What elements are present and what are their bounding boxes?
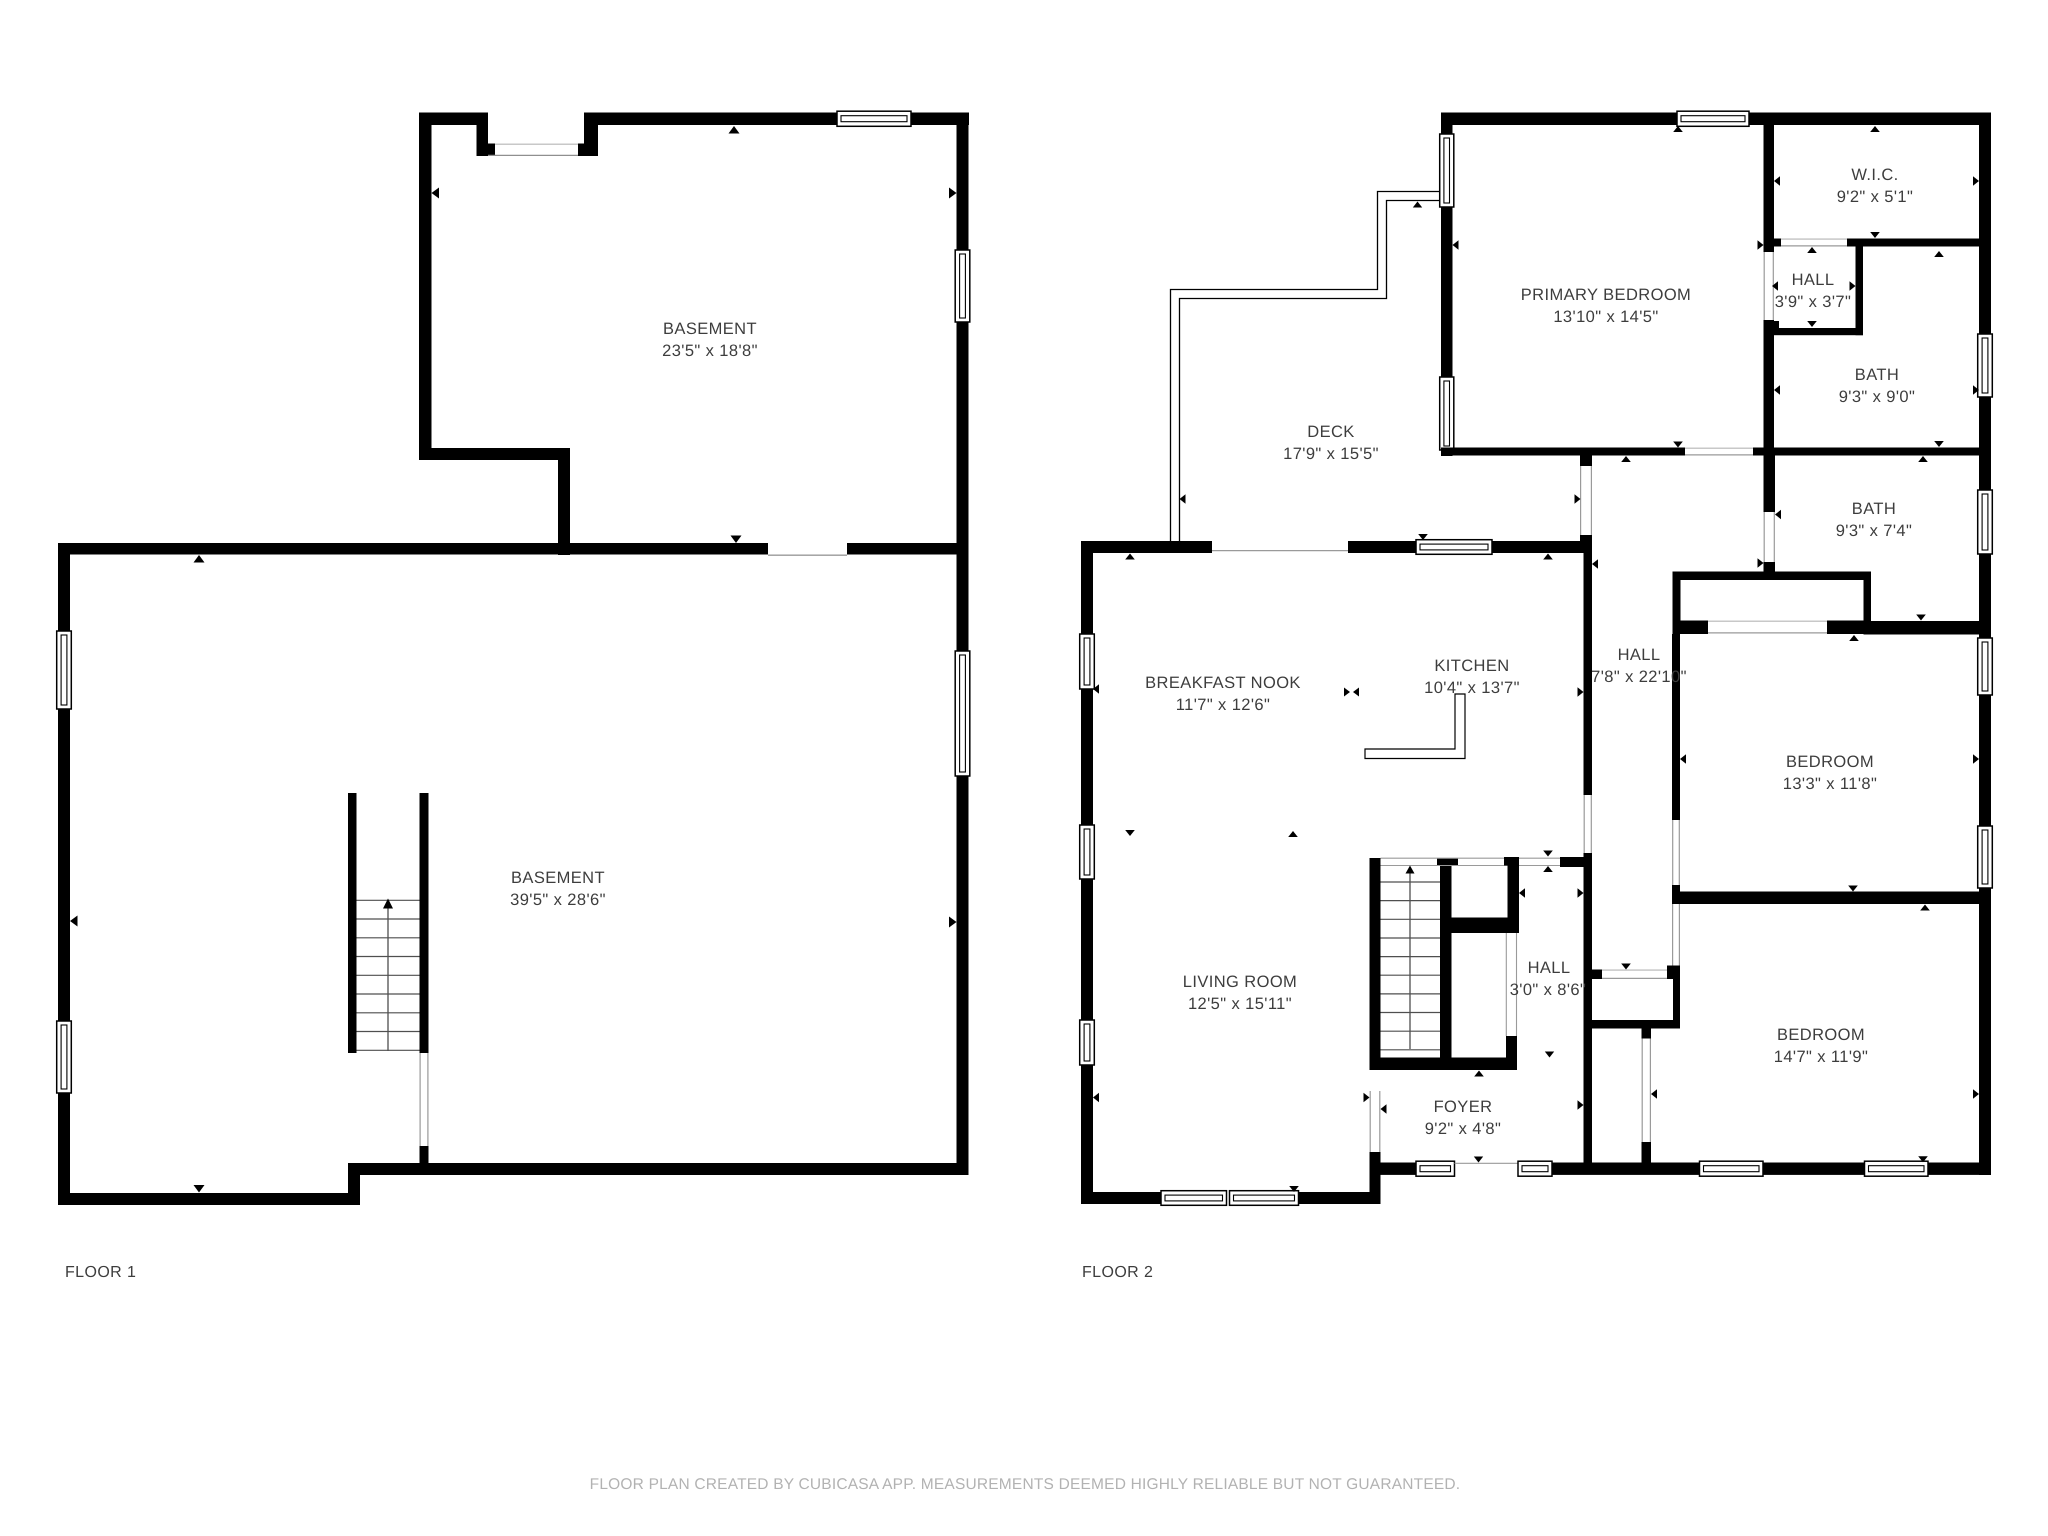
svg-text:13'10" x 14'5": 13'10" x 14'5" [1553,308,1658,326]
svg-text:FLOOR 2: FLOOR 2 [1082,1264,1153,1281]
svg-text:PRIMARY BEDROOM: PRIMARY BEDROOM [1521,286,1691,304]
svg-text:9'2" x 4'8": 9'2" x 4'8" [1425,1120,1502,1138]
svg-text:39'5" x 28'6": 39'5" x 28'6" [510,891,606,909]
svg-text:HALL: HALL [1792,271,1835,289]
svg-text:BEDROOM: BEDROOM [1777,1026,1865,1044]
svg-text:W.I.C.: W.I.C. [1851,166,1898,184]
svg-text:11'7" x 12'6": 11'7" x 12'6" [1176,696,1270,714]
svg-text:FOYER: FOYER [1434,1098,1493,1116]
svg-text:FLOOR PLAN CREATED BY CUBICASA: FLOOR PLAN CREATED BY CUBICASA APP. MEAS… [590,1476,1461,1493]
svg-text:DECK: DECK [1307,423,1354,441]
svg-text:LIVING ROOM: LIVING ROOM [1183,973,1297,991]
svg-text:KITCHEN: KITCHEN [1434,657,1509,675]
svg-text:13'3" x 11'8": 13'3" x 11'8" [1783,775,1877,793]
svg-text:HALL: HALL [1618,646,1661,664]
svg-text:FLOOR 1: FLOOR 1 [65,1264,136,1281]
svg-text:17'9" x 15'5": 17'9" x 15'5" [1283,445,1379,463]
svg-text:12'5" x 15'11": 12'5" x 15'11" [1188,995,1292,1013]
svg-text:BASEMENT: BASEMENT [511,869,605,887]
svg-text:7'8" x 22'10": 7'8" x 22'10" [1591,668,1687,686]
svg-text:BEDROOM: BEDROOM [1786,753,1874,771]
svg-text:HALL: HALL [1528,959,1571,977]
svg-text:10'4" x 13'7": 10'4" x 13'7" [1424,679,1520,697]
svg-text:23'5" x 18'8": 23'5" x 18'8" [662,342,758,360]
svg-text:BREAKFAST NOOK: BREAKFAST NOOK [1145,674,1301,692]
svg-text:14'7" x 11'9": 14'7" x 11'9" [1774,1048,1868,1066]
svg-text:9'3" x 7'4": 9'3" x 7'4" [1836,522,1913,540]
svg-text:BASEMENT: BASEMENT [663,320,757,338]
svg-text:3'0" x 8'6": 3'0" x 8'6" [1510,981,1587,999]
svg-text:BATH: BATH [1855,366,1899,384]
svg-text:9'2" x 5'1": 9'2" x 5'1" [1837,188,1914,206]
svg-text:9'3" x 9'0": 9'3" x 9'0" [1839,388,1916,406]
svg-text:BATH: BATH [1852,500,1896,518]
svg-text:3'9" x 3'7": 3'9" x 3'7" [1775,293,1852,311]
